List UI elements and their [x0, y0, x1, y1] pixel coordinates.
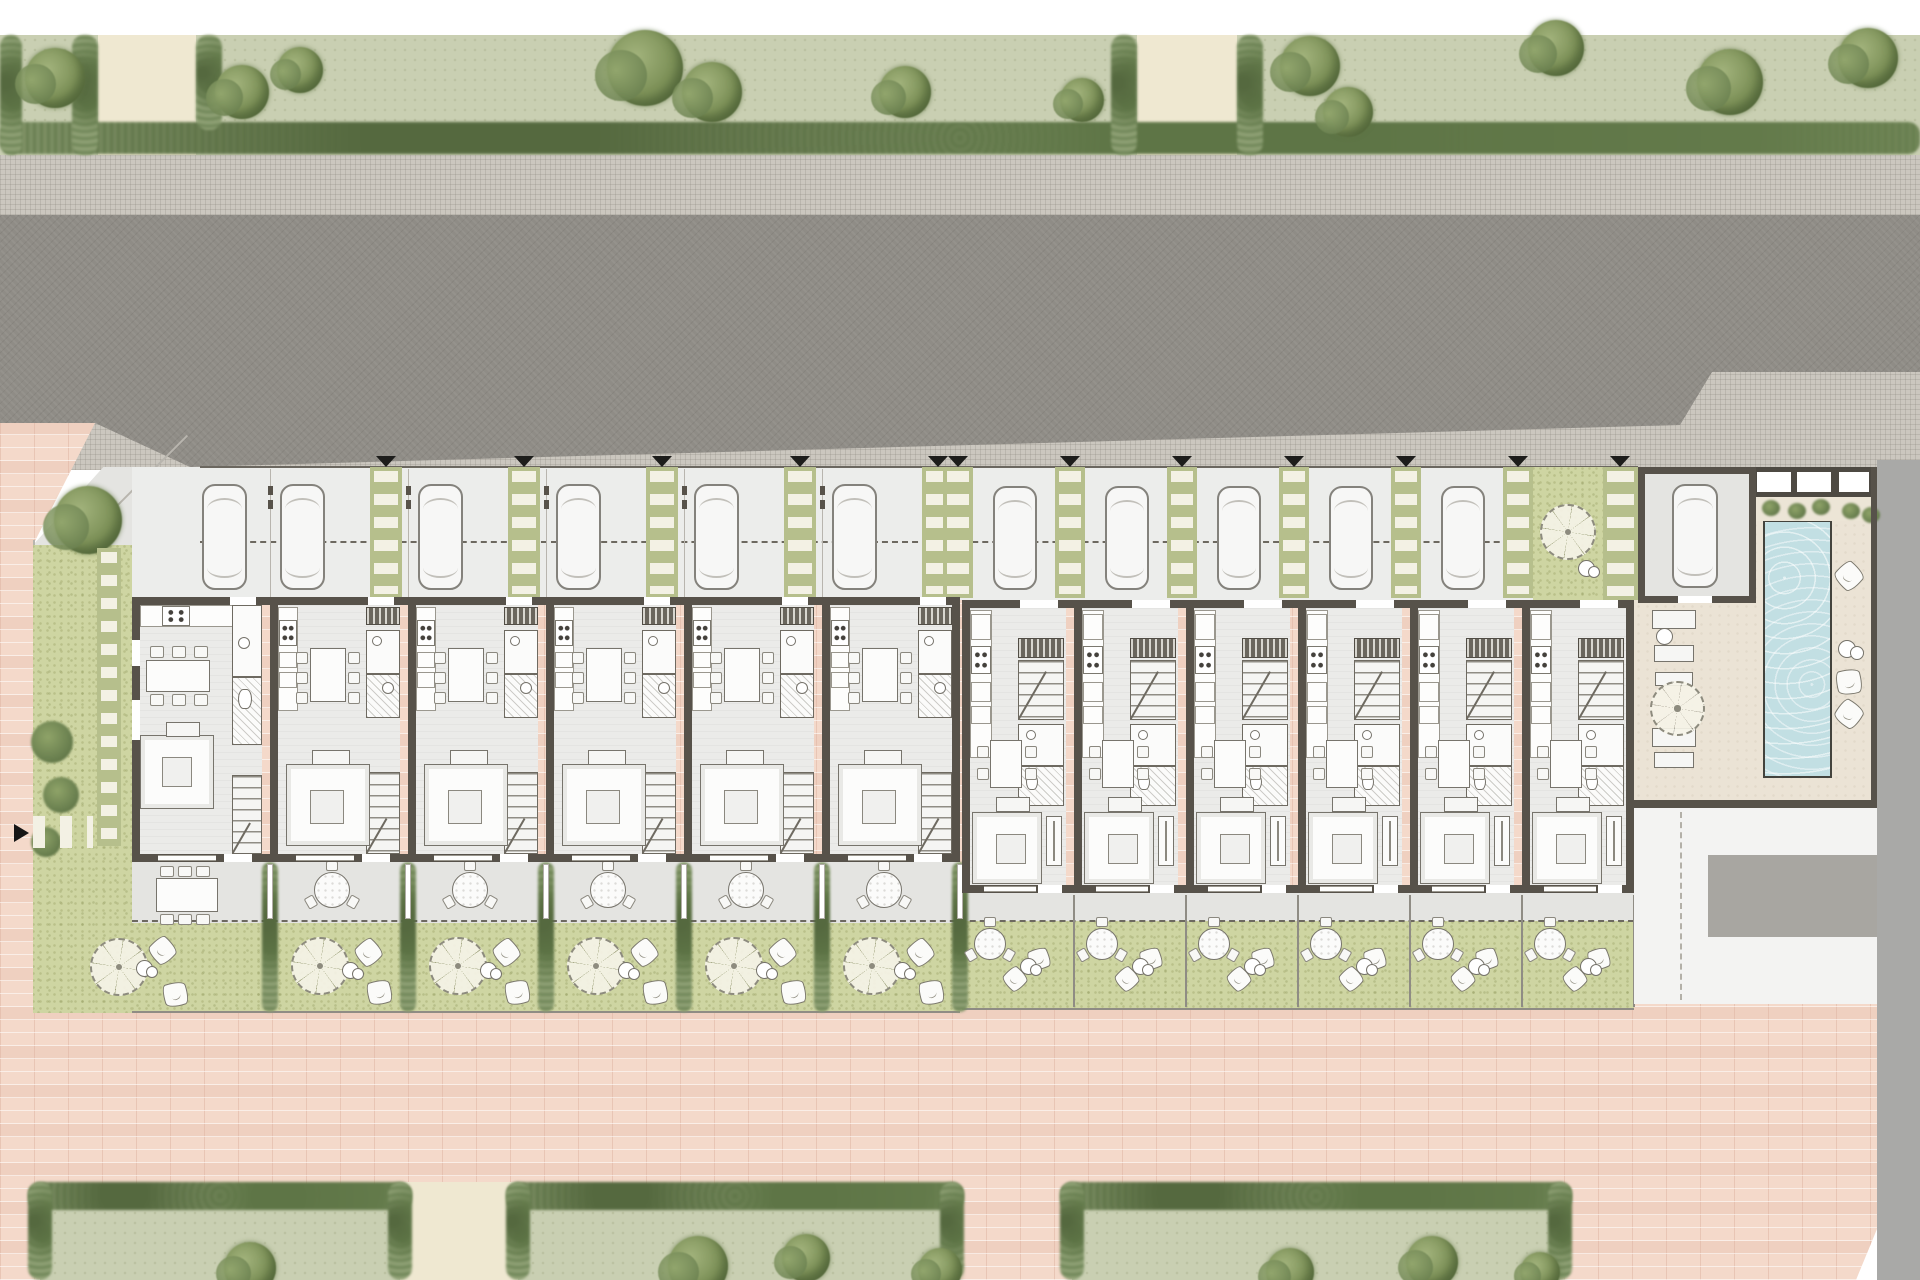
chair-icon [150, 646, 164, 658]
chair-icon [160, 914, 174, 925]
door-mark [544, 500, 549, 509]
terrace-post [543, 864, 549, 919]
dining-table [146, 660, 210, 692]
shower-icon [382, 682, 394, 694]
patio-door [572, 855, 630, 861]
sofa-cushion [996, 797, 1030, 812]
bistro-table-icon [866, 872, 902, 908]
car-icon [280, 484, 325, 590]
car-icon [202, 484, 247, 590]
chair-icon [977, 768, 989, 780]
side-table-icon [352, 968, 364, 980]
car-icon [694, 484, 739, 590]
appliance [1419, 682, 1439, 702]
unit-a-wall [822, 597, 830, 862]
unit-a-wall [684, 597, 692, 862]
door-opening [1374, 885, 1398, 893]
triangle-entry-marker [948, 456, 968, 467]
entry-porch [1468, 600, 1506, 608]
chair-icon [710, 672, 722, 684]
door-opening [920, 597, 946, 605]
bistro-table-icon [728, 872, 764, 908]
closet [1578, 638, 1624, 658]
stove-icon [279, 620, 297, 646]
sink-icon [1138, 730, 1148, 740]
service-pad [1708, 855, 1877, 937]
stairs [504, 772, 538, 854]
sofa-cushion [312, 750, 350, 765]
hedge [1111, 35, 1137, 155]
sun-lounger-icon [1654, 752, 1694, 768]
stove-icon [1195, 646, 1215, 674]
skylight-pane [1757, 472, 1791, 492]
chair-icon [1544, 917, 1556, 927]
appliance [831, 652, 849, 668]
unit-b-wall [1186, 600, 1194, 893]
closet [504, 607, 538, 625]
bistro-table-icon [1086, 928, 1118, 960]
green-paver-strip [646, 467, 678, 598]
chair-icon [348, 672, 360, 684]
garden-plot [1072, 1198, 1560, 1280]
chair-icon [900, 692, 912, 704]
parasol-icon [567, 937, 625, 995]
chair-icon [296, 672, 308, 684]
bathroom [366, 630, 400, 674]
side-table-icon [1158, 816, 1174, 866]
shower-icon [796, 682, 808, 694]
tree-icon [1406, 1236, 1458, 1280]
plant-icon [1812, 499, 1830, 515]
window-opening [132, 640, 140, 666]
green-paver-strip [508, 467, 540, 598]
chair-icon [762, 672, 774, 684]
chair-icon [296, 652, 308, 664]
sink-icon [510, 636, 520, 646]
patio-door [984, 886, 1036, 892]
entry-porch [1580, 600, 1618, 608]
bistro-table-icon [452, 872, 488, 908]
terrace-post [681, 864, 687, 919]
chair-icon [434, 672, 446, 684]
plant-icon [1762, 500, 1780, 516]
tree-icon [1838, 28, 1898, 88]
garden-divider [1409, 895, 1411, 1007]
side-table-icon [904, 968, 916, 980]
chair-icon [348, 692, 360, 704]
car-icon [556, 484, 601, 590]
courtyard-dash-line [1680, 812, 1682, 1000]
tree-icon [1060, 78, 1104, 122]
chair-icon [178, 866, 192, 877]
dining-table [1102, 740, 1134, 788]
chair-icon [486, 692, 498, 704]
sofa-seat [448, 790, 482, 824]
chair-icon [624, 672, 636, 684]
door-mark [820, 486, 825, 495]
chair-icon [1249, 768, 1261, 780]
appliance [1195, 614, 1215, 640]
sofa-seat [162, 757, 192, 787]
stairs [918, 772, 952, 854]
stepping-path [33, 816, 93, 848]
unit-b-wall [962, 600, 970, 893]
chair-icon [196, 866, 210, 877]
site-plan-canvas: PEATONAL [0, 0, 1920, 1280]
parasol-icon [1650, 681, 1705, 736]
chair-icon [178, 914, 192, 925]
appliance [1083, 614, 1103, 640]
garage-wall [1749, 467, 1756, 603]
tree-icon [1528, 20, 1584, 76]
car-icon [832, 484, 877, 590]
tree-icon [682, 62, 742, 122]
bathroom [1354, 724, 1400, 766]
chair-icon [1089, 768, 1101, 780]
bathroom [1466, 724, 1512, 766]
door-opening [500, 854, 528, 862]
unit-a-wall [270, 597, 278, 862]
sink-icon [1362, 730, 1372, 740]
stove-icon [1419, 646, 1439, 674]
bathroom [1018, 724, 1064, 766]
sofa-seat [1332, 834, 1362, 864]
side-table-icon [1850, 646, 1864, 660]
stairs [642, 772, 676, 854]
side-table-icon [628, 968, 640, 980]
unit-b-wall [1074, 600, 1082, 893]
chair-icon [1361, 746, 1373, 758]
chair-icon [1313, 746, 1325, 758]
green-paver-strip [1055, 467, 1085, 598]
side-table-icon [1254, 964, 1266, 976]
neighbor-parcel [1877, 460, 1920, 1280]
bathroom [642, 674, 676, 718]
dining-table [310, 648, 346, 702]
tree-icon [54, 486, 122, 554]
shower-icon [658, 682, 670, 694]
appliance [693, 652, 711, 668]
side-table-icon [1366, 964, 1378, 976]
unit-b-wall [1298, 600, 1306, 893]
dining-table [586, 648, 622, 702]
skylight-pane [1797, 472, 1831, 492]
appliance [555, 652, 573, 668]
parking-dash-line [200, 541, 1600, 543]
dining-table [990, 740, 1022, 788]
stove-icon [693, 620, 711, 646]
chair-icon [1537, 768, 1549, 780]
patio-door [848, 855, 906, 861]
door-opening [914, 854, 942, 862]
chair-icon [848, 692, 860, 704]
sink-icon [1026, 730, 1036, 740]
site-boundary [200, 466, 1638, 468]
triangle-entry-marker [790, 456, 810, 467]
dining-table [1214, 740, 1246, 788]
chair-icon [486, 652, 498, 664]
skylight-pane [1839, 472, 1869, 492]
stove-icon [555, 620, 573, 646]
sink-icon [1586, 730, 1596, 740]
chair-icon [1361, 768, 1373, 780]
hedge [1060, 1182, 1084, 1280]
tree-icon [1323, 87, 1373, 137]
pool [1763, 520, 1832, 778]
door-opening [1038, 885, 1062, 893]
sofa-seat [862, 790, 896, 824]
dining-table [1326, 740, 1358, 788]
sofa-seat [1556, 834, 1586, 864]
dining-table [1438, 740, 1470, 788]
parasol-icon [705, 937, 763, 995]
garage-wall [1638, 467, 1756, 474]
side-table-icon [1382, 816, 1398, 866]
chair-icon [150, 694, 164, 706]
stairs [1466, 660, 1512, 720]
garage-wall [1638, 467, 1645, 603]
chair-icon [1432, 917, 1444, 927]
closet [918, 607, 952, 625]
door-opening [1486, 885, 1510, 893]
stove-icon [971, 646, 991, 674]
appliance [279, 652, 297, 668]
side-table-icon [1494, 816, 1510, 866]
chair-icon [1096, 917, 1108, 927]
door-mark [406, 486, 411, 495]
chair-icon [848, 672, 860, 684]
door-mark [268, 486, 273, 495]
patio-door [158, 855, 216, 861]
patio-door [1096, 886, 1148, 892]
bathroom [1242, 724, 1288, 766]
bathroom [504, 630, 538, 674]
sofa-cushion [1332, 797, 1366, 812]
sink-icon [786, 636, 796, 646]
car-icon [1105, 486, 1149, 590]
sofa-seat [1108, 834, 1138, 864]
hedge [28, 1182, 412, 1210]
side-table-icon [1142, 964, 1154, 976]
stairs [1354, 660, 1400, 720]
chair-icon [1249, 746, 1261, 758]
triangle-entry-marker [1396, 456, 1416, 467]
sofa-cushion [166, 722, 200, 737]
window-opening [132, 700, 140, 740]
appliance [1083, 682, 1103, 702]
car-icon [1217, 486, 1261, 590]
side-table-icon [1606, 816, 1622, 866]
shrub-icon [43, 777, 79, 813]
door-opening [1262, 885, 1286, 893]
chair-icon [1137, 768, 1149, 780]
bathroom [780, 674, 814, 718]
hedge [388, 1182, 412, 1280]
hedge [1237, 35, 1263, 155]
appliance [971, 706, 991, 724]
toilet-icon [238, 689, 252, 709]
garden-divider [1185, 895, 1187, 1007]
appliance [1307, 682, 1327, 702]
car-icon [1329, 486, 1373, 590]
bathroom [642, 630, 676, 674]
tree-icon [25, 48, 85, 108]
patio-door [296, 855, 354, 861]
closet [1242, 638, 1288, 658]
green-paver-strip [1167, 467, 1197, 598]
bathroom [504, 674, 538, 718]
chair-icon [486, 672, 498, 684]
side-table-icon [1270, 816, 1286, 866]
stairs [1130, 660, 1176, 720]
dining-table [448, 648, 484, 702]
appliance [417, 652, 435, 668]
chair-icon [196, 914, 210, 925]
bathroom [918, 630, 952, 674]
chair-icon [194, 646, 208, 658]
door-mark [682, 500, 687, 509]
appliance [1307, 614, 1327, 640]
patio-door [1320, 886, 1372, 892]
appliance [1419, 614, 1439, 640]
tree-icon [879, 66, 931, 118]
bathroom [232, 677, 262, 745]
sofa-seat [724, 790, 758, 824]
hedge [28, 1182, 52, 1280]
terrace-post [819, 864, 825, 919]
stepping-path [97, 548, 121, 846]
chair-icon [624, 692, 636, 704]
dining-table [724, 648, 760, 702]
bistro-table-icon [314, 872, 350, 908]
closet [1018, 638, 1064, 658]
chair-icon [160, 866, 174, 877]
plant-icon [1842, 503, 1860, 519]
door-opening [638, 854, 666, 862]
appliance [1531, 682, 1551, 702]
green-paver-strip [784, 467, 816, 598]
shower-icon [934, 682, 946, 694]
hedge [506, 1182, 530, 1280]
hedge [1060, 1182, 1572, 1210]
parasol-icon [291, 937, 349, 995]
chair-icon [624, 652, 636, 664]
bistro-table-icon [1422, 928, 1454, 960]
closet [1354, 638, 1400, 658]
chair-icon [1473, 746, 1485, 758]
triangle-entry-marker [1610, 456, 1630, 467]
side-table-icon [146, 966, 158, 978]
parasol-icon [843, 937, 901, 995]
chair-icon [1425, 768, 1437, 780]
patio-door [434, 855, 492, 861]
chair-icon [1585, 746, 1597, 758]
sofa-cushion [588, 750, 626, 765]
unit-b-wall [1522, 600, 1530, 893]
side-table-icon [1656, 628, 1673, 645]
tree-icon [1280, 36, 1340, 96]
shower-icon [520, 682, 532, 694]
garden-fence [962, 1008, 1634, 1010]
appliance [971, 682, 991, 702]
sink-icon [924, 636, 934, 646]
side-table-icon [1588, 566, 1600, 578]
chair-icon [348, 652, 360, 664]
patio-door [710, 855, 768, 861]
stove-icon [1307, 646, 1327, 674]
bathroom [1578, 724, 1624, 766]
patio-door [1544, 886, 1596, 892]
green-paver-strip [370, 467, 402, 598]
chair-icon [172, 646, 186, 658]
chair-icon [572, 692, 584, 704]
chair-icon [434, 692, 446, 704]
tree-icon [215, 65, 269, 119]
chair-icon [710, 692, 722, 704]
dining-table [1550, 740, 1582, 788]
chair-icon [900, 652, 912, 664]
sink-icon [238, 637, 250, 649]
sofa-cushion [864, 750, 902, 765]
closet [780, 607, 814, 625]
sofa-cushion [1444, 797, 1478, 812]
garden-divider [1073, 895, 1075, 1007]
community-wall [1634, 800, 1877, 808]
stove-icon [417, 620, 435, 646]
bistro-table-icon [1310, 928, 1342, 960]
door-mark [406, 500, 411, 509]
chair-icon [1025, 768, 1037, 780]
sun-lounger-icon [1652, 610, 1696, 629]
side-table-icon [1590, 964, 1602, 976]
entry-arrow-icon [14, 824, 29, 842]
garden-plot [518, 1198, 952, 1280]
triangle-entry-marker [514, 456, 534, 467]
door-opening [362, 854, 390, 862]
bistro-table-icon [590, 872, 626, 908]
appliance [831, 672, 849, 688]
stove-icon [162, 606, 190, 626]
stove-icon [831, 620, 849, 646]
stairs [232, 775, 262, 854]
chair-icon [1089, 746, 1101, 758]
stairs [366, 772, 400, 854]
bathroom [366, 674, 400, 718]
door-mark [682, 486, 687, 495]
chair-icon [194, 694, 208, 706]
chair-icon [900, 672, 912, 684]
door-mark [544, 486, 549, 495]
garden-divider [1297, 895, 1299, 1007]
chair-icon [1425, 746, 1437, 758]
car-icon [1441, 486, 1485, 590]
sink-icon [648, 636, 658, 646]
patio-door [1208, 886, 1260, 892]
chair-icon [762, 652, 774, 664]
sofa-seat [310, 790, 344, 824]
triangle-entry-marker [928, 456, 948, 467]
tree-icon [782, 1234, 830, 1280]
hedge [506, 1182, 964, 1210]
entry-porch [1132, 600, 1170, 608]
green-paver-strip [1279, 467, 1309, 598]
chair-icon [434, 652, 446, 664]
appliance [1531, 706, 1551, 724]
sofa-cushion [726, 750, 764, 765]
stepping-strip [1603, 467, 1638, 600]
closet [1130, 638, 1176, 658]
garage-door [1678, 596, 1712, 603]
